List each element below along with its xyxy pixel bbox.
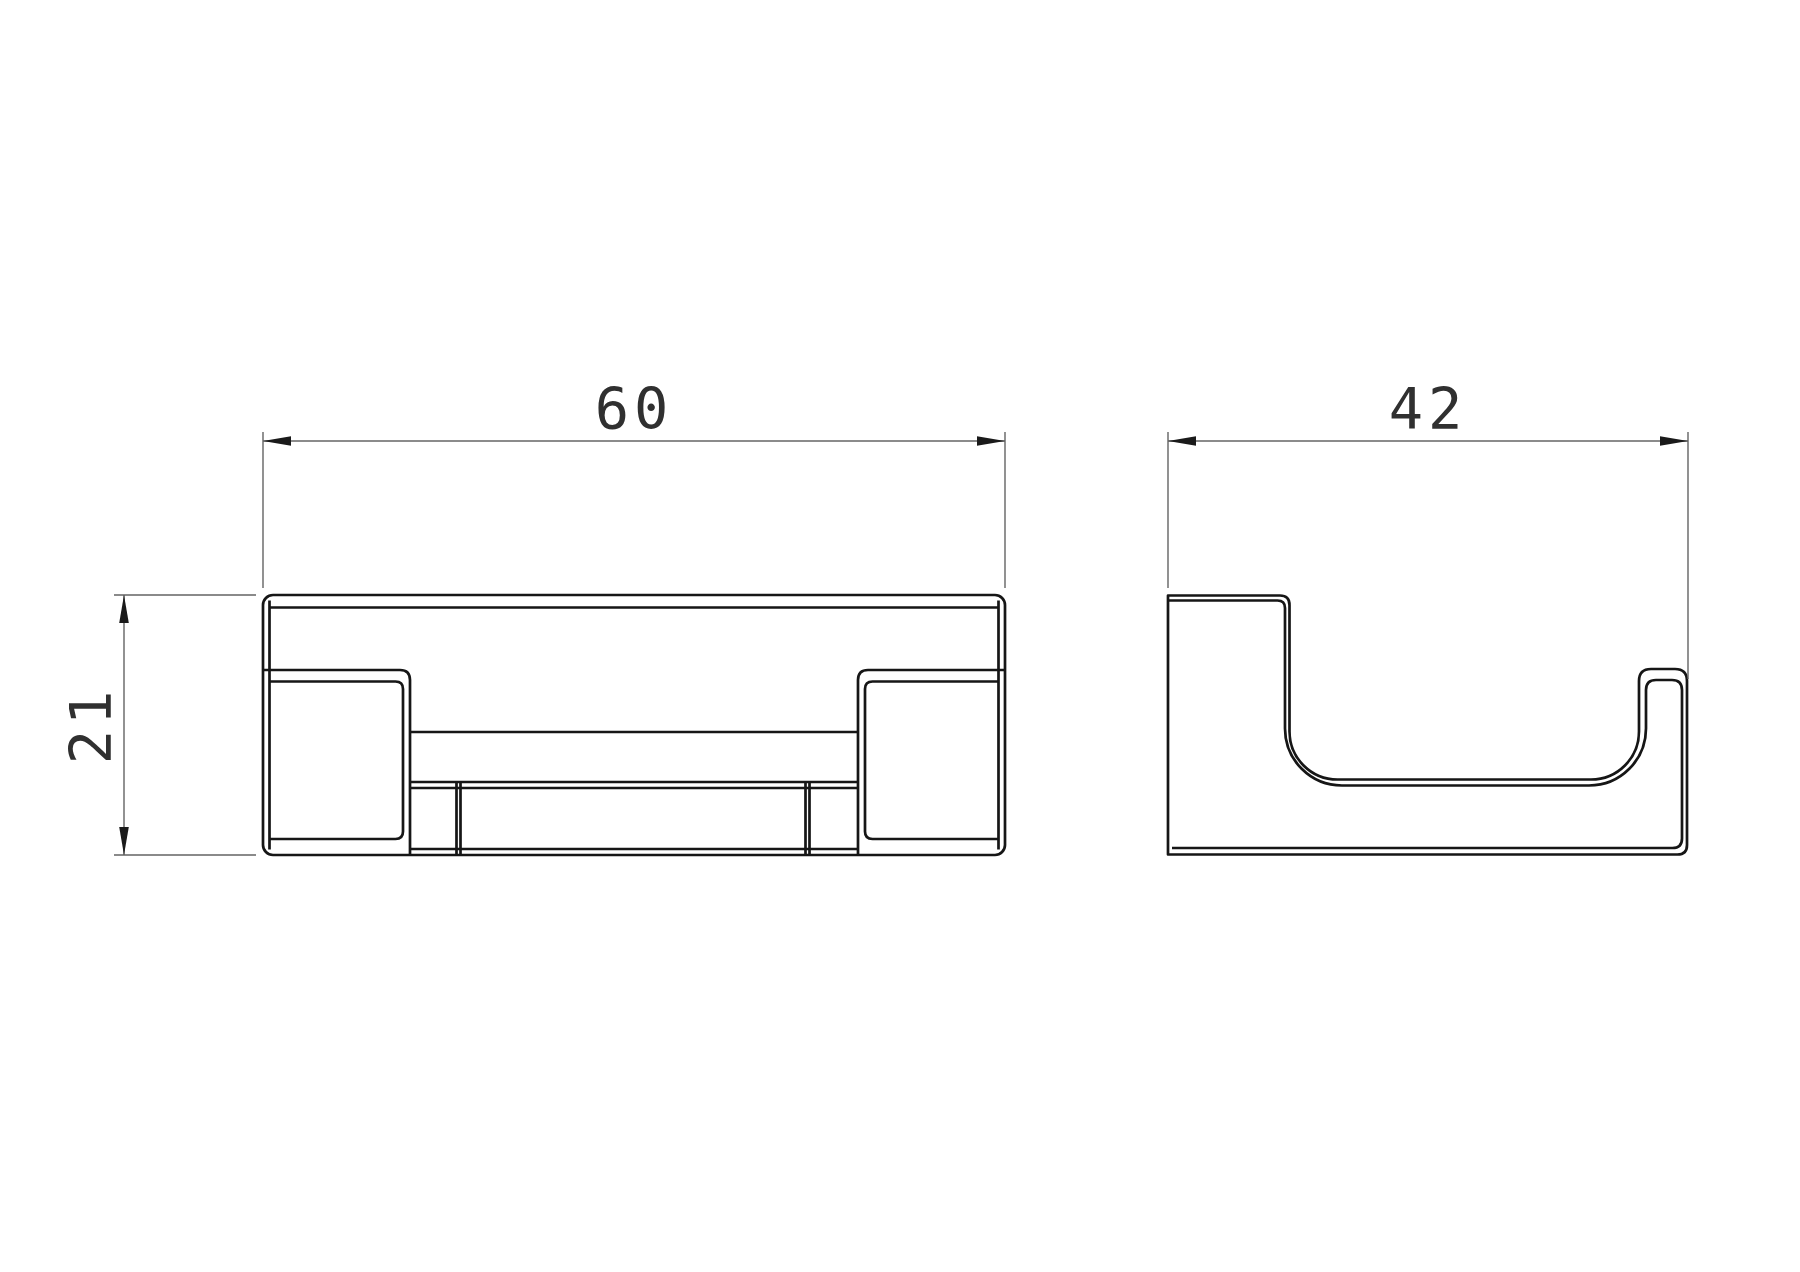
height-dim-extension-lines	[114, 595, 256, 855]
height-dim-arrow-top	[119, 595, 129, 623]
depth-dim-arrow-right	[1660, 436, 1688, 446]
dimension-arrows	[119, 436, 1688, 855]
dimension-lines	[124, 441, 1688, 855]
width-dimension-value: 60	[595, 376, 674, 442]
drawing-sheet: 60 42 21	[0, 0, 1800, 1272]
width-dim-arrow-left	[263, 436, 291, 446]
width-dim-extension-lines	[263, 432, 1005, 588]
width-dim-arrow-right	[977, 436, 1005, 446]
front-plate-inner-edges	[270, 601, 999, 850]
front-right-hook-lip-inner	[865, 682, 999, 840]
depth-dim-extension-lines	[1168, 432, 1688, 679]
depth-dimension-value: 42	[1389, 376, 1468, 442]
front-arm-edges	[410, 732, 858, 849]
technical-drawing: 60 42 21	[0, 0, 1800, 1272]
side-view	[1168, 596, 1687, 855]
front-view	[263, 595, 1005, 855]
extension-lines	[114, 432, 1688, 855]
side-profile-outline	[1168, 596, 1687, 855]
front-left-hook-lip	[263, 670, 410, 855]
side-profile-inner-edges	[1168, 601, 1682, 849]
dimensions: 60 42 21	[58, 376, 1688, 855]
front-left-hook-lip-inner	[270, 682, 404, 840]
front-plate-outline	[263, 595, 1005, 855]
front-notch-edges	[457, 782, 810, 855]
front-right-hook-lip	[858, 670, 1005, 855]
height-dimension-value: 21	[58, 686, 124, 765]
depth-dim-arrow-left	[1168, 436, 1196, 446]
height-dim-arrow-bottom	[119, 827, 129, 855]
